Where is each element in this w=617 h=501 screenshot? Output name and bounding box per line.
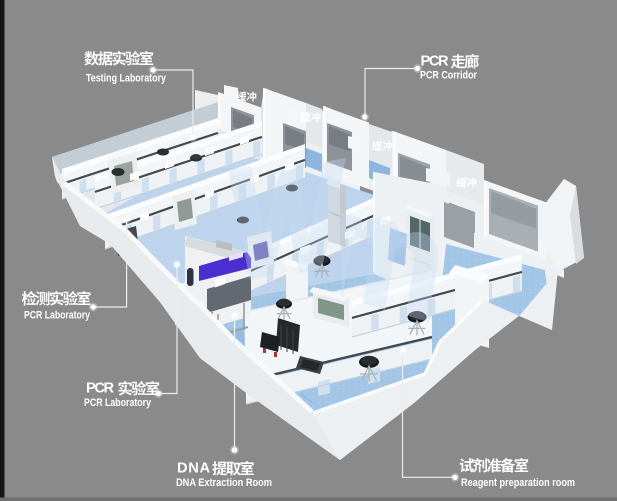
svg-text:Testing Laboratory: Testing Laboratory <box>86 73 167 85</box>
svg-text:DNA Extraction Room: DNA Extraction Room <box>176 477 272 489</box>
svg-text:PCR Laboratory: PCR Laboratory <box>84 397 152 409</box>
svg-text:DNA: DNA <box>177 461 210 477</box>
svg-text:PCR: PCR <box>86 381 114 397</box>
svg-text:Reagent preparation room: Reagent preparation room <box>461 477 575 489</box>
svg-text:PCR: PCR <box>421 54 449 70</box>
svg-text:PCR Corridor: PCR Corridor <box>420 70 478 82</box>
svg-text:PCR Laboratory: PCR Laboratory <box>24 310 90 322</box>
